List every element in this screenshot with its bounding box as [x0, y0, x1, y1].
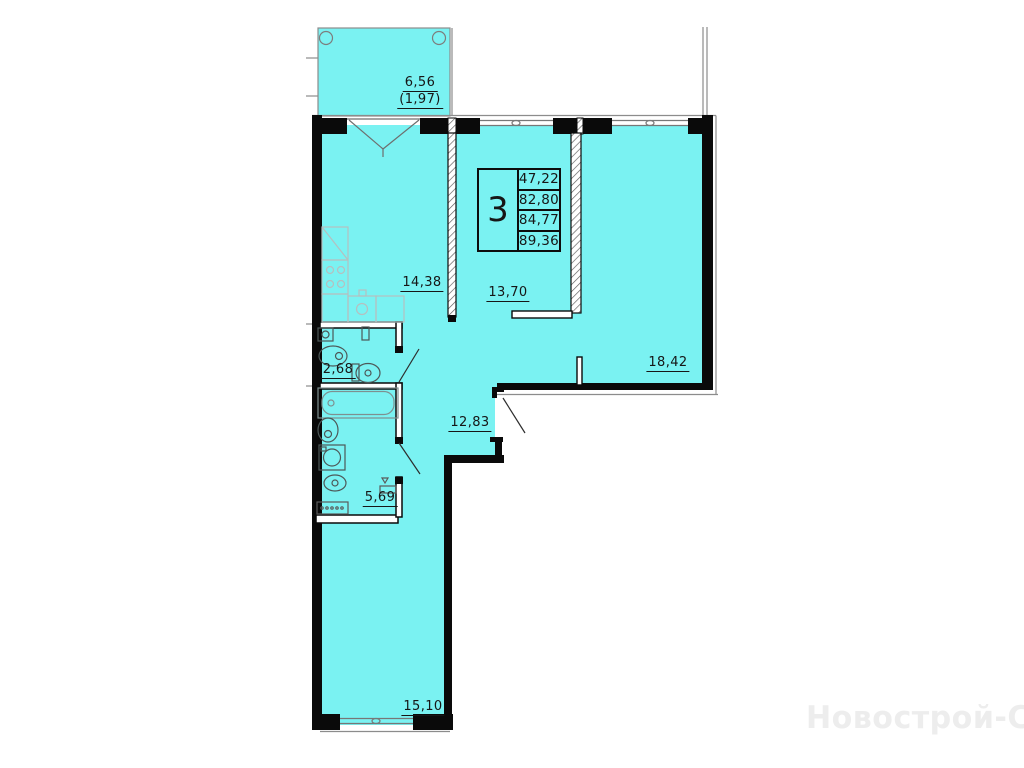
watermark: Новострой-СПб [806, 700, 1014, 736]
area-values-column: 47,22 82,80 84,77 89,36 [519, 170, 559, 250]
area-label-kitchen-living: 14,38 [400, 276, 443, 292]
flat-number: 3 [479, 170, 519, 250]
area-label-bedroom-15: 15,10 [401, 700, 444, 716]
area-label-bedroom-18: 18,42 [646, 356, 689, 372]
area-label-balcony-coeff: (1,97) [397, 93, 443, 109]
area-value-total: 89,36 [519, 232, 559, 251]
area-label-wc: 2,68 [321, 363, 356, 379]
floor-plan-page: 6,56 (1,97) 14,38 13,70 18,42 2,68 12,83… [0, 0, 1024, 768]
window-vent-icon [512, 121, 520, 126]
window-vent-icon [646, 121, 654, 126]
area-label-hallway: 12,83 [448, 416, 491, 432]
floor-plan-drawing [0, 0, 1024, 768]
area-value-living: 47,22 [519, 170, 559, 191]
neighbor-balcony-outline [703, 27, 707, 116]
area-value-reduced-total: 84,77 [519, 211, 559, 232]
area-label-balcony: 6,56 [403, 76, 438, 92]
apartment-info-table: 3 47,22 82,80 84,77 89,36 [477, 168, 561, 252]
area-value-flat: 82,80 [519, 191, 559, 212]
area-label-room-13: 13,70 [486, 286, 529, 302]
entrance-door-icon [503, 398, 525, 433]
area-label-bathroom: 5,69 [363, 491, 398, 507]
